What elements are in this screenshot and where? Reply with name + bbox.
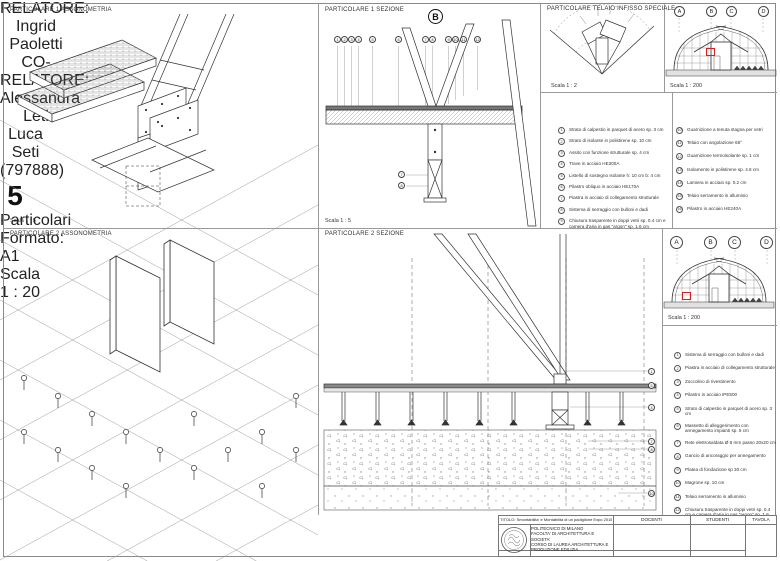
legend-item-number: 6 <box>674 423 681 430</box>
panel2-asso-title: PARTICOLARE 2 ASSONOMETRIA <box>10 231 112 237</box>
legend-item-text: Pilastro in acciaio HE240A <box>687 206 741 211</box>
legend-item-number: 9 <box>674 467 681 474</box>
dome-elevation-top-drawing <box>664 18 778 80</box>
detail2-axonometric-drawing <box>0 240 318 514</box>
legend-item-number: 15 <box>676 193 683 200</box>
legend-item: 15 Telaio serramento in alluminio <box>676 193 776 200</box>
legend-item-number: 2 <box>558 138 565 145</box>
legend-item-text: Assito con funzione strutturale sp. 4 cm <box>569 150 649 155</box>
grid-marker-d: D <box>760 236 773 249</box>
grid-marker-c: C <box>728 236 741 249</box>
panel-divider <box>540 3 541 228</box>
studenti-header: STUDENTI <box>690 517 745 522</box>
grid-marker-d: D <box>758 6 769 17</box>
legend-item: 3 Zoccolino di rivestimento <box>674 379 776 386</box>
titleblock-titolo: TITOLO: Smontabilita' e Montabilita di u… <box>500 517 612 522</box>
legend-detail2: 1 Sistema di serraggio con bulloni e dad… <box>674 352 776 523</box>
legend-item: 13 Isolamento in polistirene sp. 4.6 cm <box>676 167 776 174</box>
legend-item: 9 Chiusura trasparente in doppi vetri sp… <box>558 218 670 229</box>
detail-balloon: 4 <box>355 36 362 43</box>
legend-item-number: 1 <box>674 352 681 359</box>
legend-item-number: 5 <box>674 406 681 413</box>
legend-item-number: 8 <box>674 453 681 460</box>
legend-item-text: Telaio serramento in alluminio <box>687 193 748 198</box>
legend-item: 16 Pilastro in acciaio HE240A <box>676 206 776 213</box>
section-marker-b: B <box>428 9 443 24</box>
legend-item-number: 11 <box>676 140 683 147</box>
legend-item-number: 5 <box>558 173 565 180</box>
detail-balloon: 8 <box>429 36 436 43</box>
legend-item-text: Telaio serramento in alluminio <box>685 494 746 499</box>
tavola-header: TAVOLA <box>745 517 777 522</box>
legend-item-number: 10 <box>674 480 681 487</box>
detail-balloon: 12 <box>474 36 481 43</box>
legend-item-number: 9 <box>558 218 565 225</box>
legend-item-number: 16 <box>676 206 683 213</box>
dome-bottom-grid-markers: A B C D <box>662 236 778 249</box>
legend-item: 2 Strato di isolante in polistirene sp. … <box>558 138 670 145</box>
legend-item-text: Trave in acciaio HE300A <box>569 161 619 166</box>
legend-item-number: 12 <box>674 507 681 514</box>
detail-balloon: 8 <box>648 446 655 453</box>
legend-item-number: 6 <box>558 184 565 191</box>
detail-balloon: 6 <box>395 36 402 43</box>
legend-item: 2 Piastra in acciaio di collegamento str… <box>674 365 776 372</box>
detail-balloon: 4 <box>648 404 655 411</box>
panel-divider <box>662 325 777 326</box>
legend-item: 9 Platea di fondazione sp 30 cm <box>674 467 776 474</box>
titleblock-divider <box>498 524 777 525</box>
telaio-fan-drawing <box>542 4 666 84</box>
legend-item-text: Listello di sostegno isolante h: 10 cm b… <box>569 173 660 178</box>
detail-balloon: 7 <box>422 36 429 43</box>
legend-item-text: Gancio di ancoraggio per annegamento <box>685 453 766 458</box>
legend-item: 11 Telaio serramento in alluminio <box>674 494 776 501</box>
grid-marker-a: A <box>670 236 683 249</box>
legend-item-text: Guarnizione a tenuta stagna per vetri <box>687 127 763 132</box>
legend-item-text: Guarnizione termoisolante sp. 1 cm <box>687 153 759 158</box>
politecnico-logo-seal <box>500 526 528 554</box>
legend-item-text: Strato di calpestio in parquet di acero … <box>685 406 776 417</box>
legend-item-text: Piastra in acciaio di collegamento strut… <box>569 195 659 200</box>
detail-location-highlight <box>706 48 715 56</box>
legend-item-number: 4 <box>674 392 681 399</box>
legend-item-number: 10 <box>676 127 683 134</box>
legend-item-text: Massetto di alleggerimento con annegamen… <box>685 423 776 434</box>
legend-item: 5 Strato di calpestio in parquet di acer… <box>674 406 776 417</box>
grid-marker-a: A <box>674 6 685 17</box>
detail-balloon: 5 <box>648 382 655 389</box>
legend-item-text: Pilastro in acciaio IPE500 <box>685 392 737 397</box>
legend-item-number: 8 <box>558 207 565 214</box>
dome-elevation-bottom-drawing <box>662 250 776 312</box>
detail-balloon: 2 <box>341 36 348 43</box>
legend-item-text: Chiusura trasparente in doppi vetri sp. … <box>569 218 670 229</box>
legend-item: 3 Assito con funzione strutturale sp. 4 … <box>558 150 670 157</box>
grid-marker-c: C <box>726 6 737 17</box>
detail-balloon: 11 <box>460 36 467 43</box>
legend-item-text: Isolamento in polistirene sp. 4.6 cm <box>687 167 759 172</box>
school-line: FACOLTA' DI ARCHITETTURA E SOCIETA' <box>531 531 612 542</box>
legend-item: 10 Magrone sp. 10 cm <box>674 480 776 487</box>
grid-marker-b: B <box>706 6 717 17</box>
dome-bottom-scale: Scala 1 : 200 <box>668 315 700 321</box>
detail-balloon: 7 <box>648 438 655 445</box>
legend-item: 4 Pilastro in acciaio IPE500 <box>674 392 776 399</box>
legend-item: 14 Lamiera in acciaio sp. 0.2 cm <box>676 180 776 187</box>
legend-item: 6 Massetto di alleggerimento con annegam… <box>674 423 776 434</box>
legend-item-number: 7 <box>558 195 565 202</box>
legend-item-number: 3 <box>558 150 565 157</box>
legend-item-number: 2 <box>674 365 681 372</box>
legend-item-number: 12 <box>676 153 683 160</box>
legend-item-number: 11 <box>674 494 681 501</box>
legend-item-text: Lamiera in acciaio sp. 0.2 cm <box>687 180 747 185</box>
legend-item-number: 14 <box>676 180 683 187</box>
legend-item: 8 Gancio di ancoraggio per annegamento <box>674 453 776 460</box>
detail-balloon: 1 <box>334 36 341 43</box>
legend-detail1-col2: 10 Guarnizione a tenuta stagna per vetri… <box>676 127 776 213</box>
detail1-section-drawing <box>318 0 540 228</box>
legend-item: 4 Trave in acciaio HE300A <box>558 161 670 168</box>
legend-item-text: Pilastro obliquo in acciaio HE170A <box>569 184 639 189</box>
school-lines: POLITECNICO DI MILANOFACOLTA' DI ARCHITE… <box>531 526 612 553</box>
legend-item-text: Piastra in acciaio di collegamento strut… <box>685 365 775 370</box>
detail-balloon: 10 <box>452 36 459 43</box>
legend-item: 10 Guarnizione a tenuta stagna per vetri <box>676 127 776 134</box>
detail1-axonometric-drawing <box>0 10 318 210</box>
panel-divider <box>672 92 673 228</box>
legend-item-number: 13 <box>676 167 683 174</box>
docenti-header: DOCENTI <box>613 517 690 522</box>
detail-balloon: 7 <box>398 171 405 178</box>
panel1-asso-scale: Scala 1 : 5 <box>10 218 36 224</box>
detail2-section-drawing <box>318 228 662 515</box>
legend-item: 8 Sistema di serraggio con bulloni e dad… <box>558 207 670 214</box>
legend-item-number: 7 <box>674 440 681 447</box>
legend-item: 7 Piastra in acciaio di collegamento str… <box>558 195 670 202</box>
legend-item-text: Strato di isolante in polistirene sp. 10… <box>569 138 651 143</box>
legend-item-text: Sistema di serraggio con bulloni e dadi <box>569 207 648 212</box>
legend-item-number: 4 <box>558 161 565 168</box>
legend-detail1-col1: 1 Strato di calpestio in parquet di acer… <box>558 127 670 229</box>
legend-item-text: Strato di calpestio in parquet di acero … <box>569 127 663 132</box>
detail-balloon: 1 <box>648 368 655 375</box>
panel-divider <box>540 92 777 93</box>
legend-item-text: Telaio con angolazione 68° <box>687 140 742 145</box>
drawing-sheet: PARTICOLARE 1 ASSONOMETRIA Scala 1 : 5 P… <box>0 0 780 561</box>
legend-item-text: Sistema di serraggio con bulloni e dadi <box>685 352 764 357</box>
legend-item-text: Magrone sp. 10 cm <box>685 480 724 485</box>
detail-balloon: 9 <box>445 36 452 43</box>
dome-top-scale: Scala 1 : 200 <box>670 83 702 89</box>
grid-marker-b: B <box>704 236 717 249</box>
detail-balloon: 3 <box>348 36 355 43</box>
legend-item: 1 Strato di calpestio in parquet di acer… <box>558 127 670 134</box>
legend-item-text: Zoccolino di rivestimento <box>685 379 736 384</box>
legend-item: 7 Rete elettrosaldata Ø 8 mm passo 20x20… <box>674 440 776 447</box>
legend-item: 12 Guarnizione termoisolante sp. 1 cm <box>676 153 776 160</box>
legend-item: 11 Telaio con angolazione 68° <box>676 140 776 147</box>
legend-item: 1 Sistema di serraggio con bulloni e dad… <box>674 352 776 359</box>
dome-top-grid-markers: A B C D <box>664 6 778 17</box>
detail-location-highlight <box>682 292 691 300</box>
legend-item-text: Rete elettrosaldata Ø 8 mm passo 20x20 c… <box>685 440 776 445</box>
school-line: PRODUZIONE EDILIZIA <box>531 547 612 552</box>
detail-balloon: 5 <box>369 36 376 43</box>
legend-item-number: 3 <box>674 379 681 386</box>
detail-balloon: 8 <box>398 182 405 189</box>
legend-item-text: Platea di fondazione sp 30 cm <box>685 467 747 472</box>
legend-item: 5 Listello di sostegno isolante h: 10 cm… <box>558 173 670 180</box>
legend-item: 6 Pilastro obliquo in acciaio HE170A <box>558 184 670 191</box>
detail-balloon: 10 <box>648 490 655 497</box>
legend-item-number: 1 <box>558 127 565 134</box>
